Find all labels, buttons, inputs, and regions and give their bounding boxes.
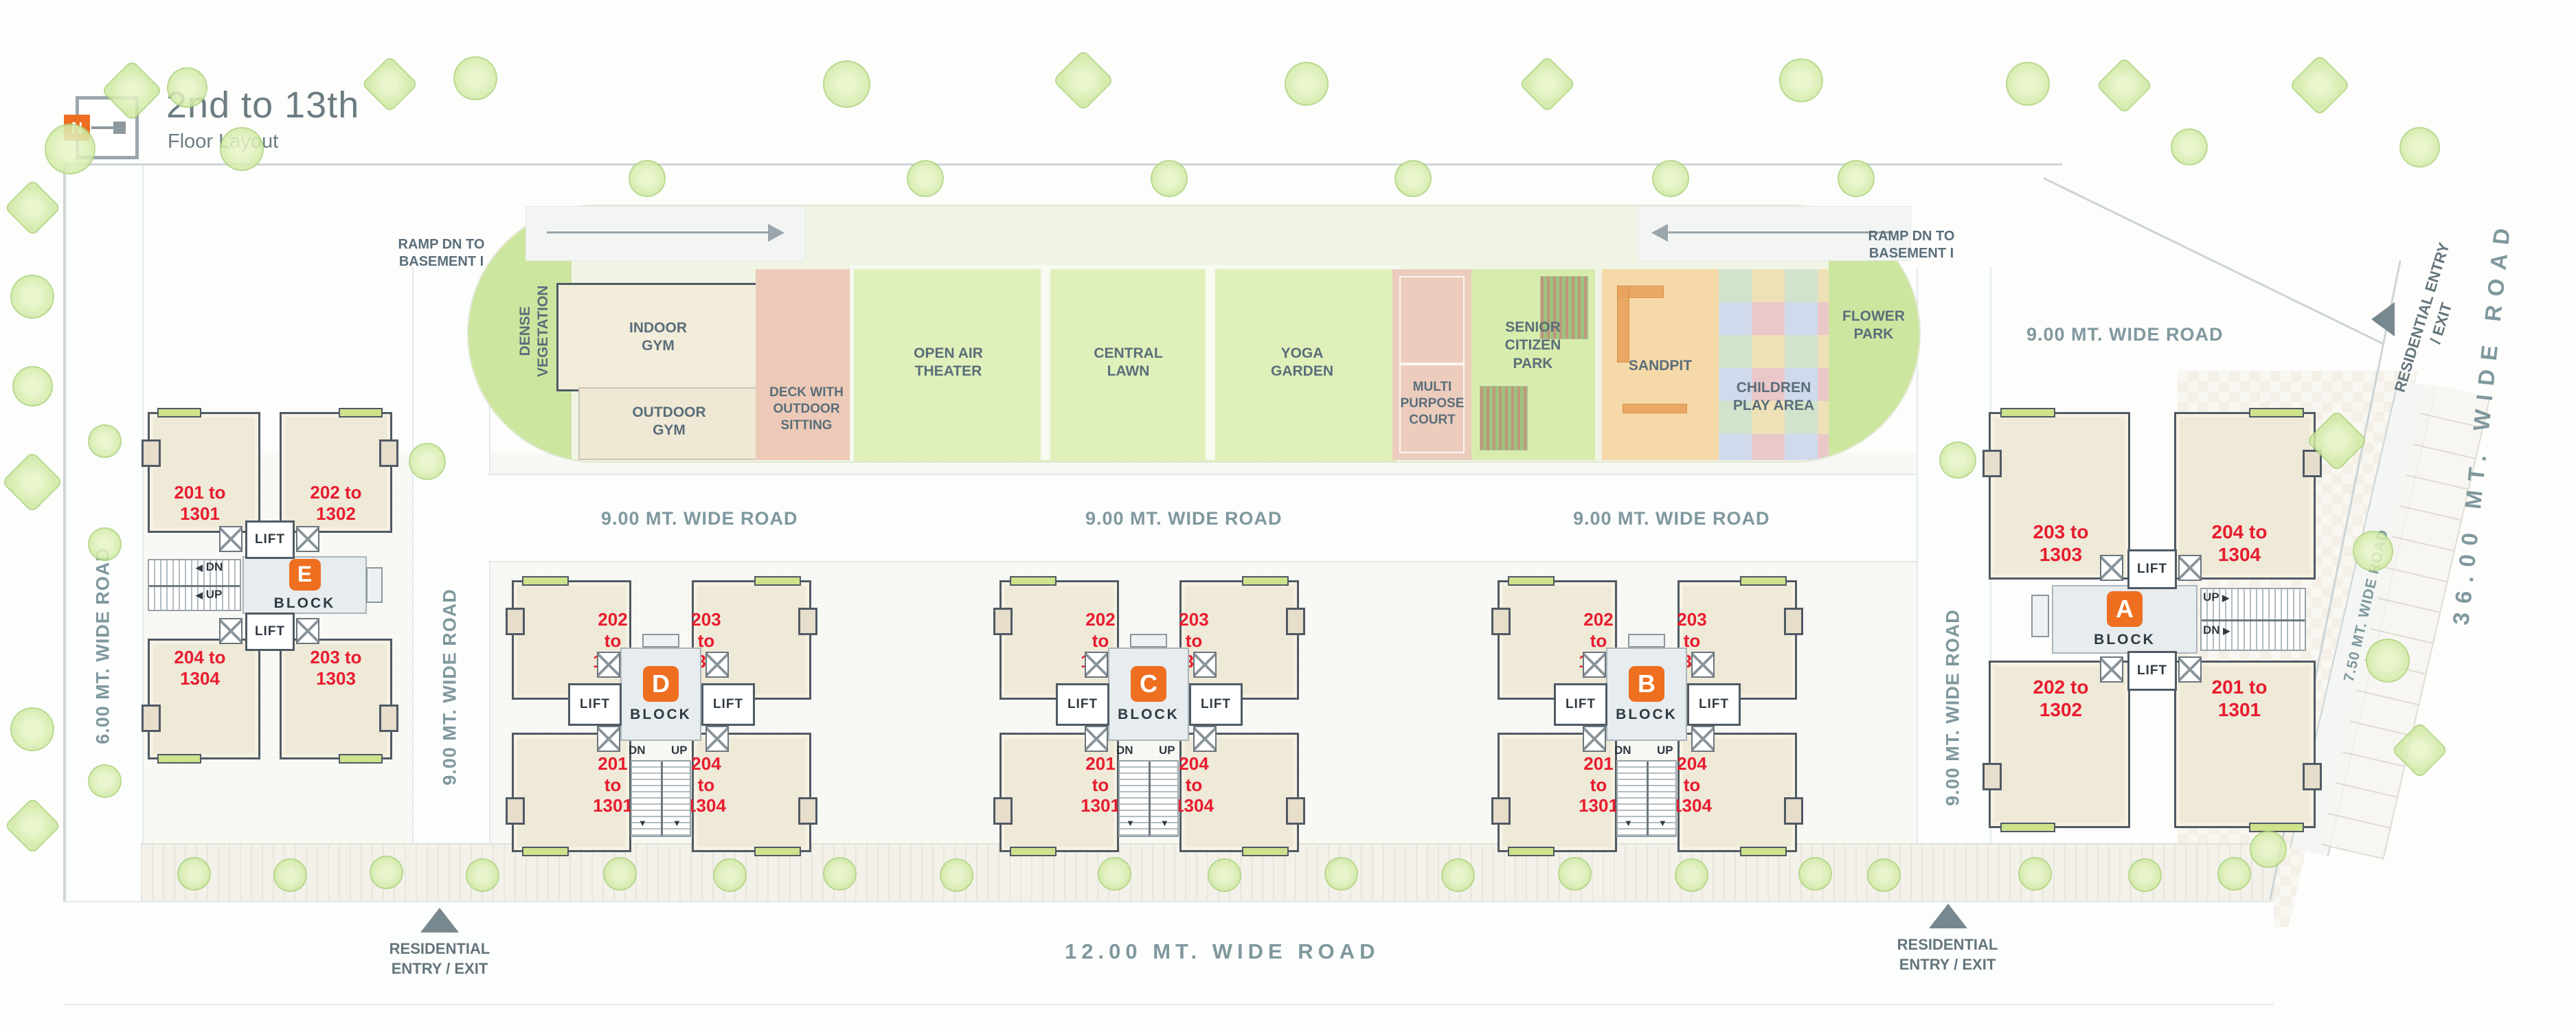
flower-park-label: FLOWER PARK [1841, 308, 1906, 344]
indoor-gym-zone: INDOOR GYM [556, 283, 760, 391]
block-a: 203 to 1303 204 to 1304 202 to 1302 201 … [1989, 412, 2312, 824]
unit-range-label: 204 to 1304 [157, 647, 242, 689]
tree-icon [1518, 55, 1575, 112]
duct-icon [2100, 555, 2123, 581]
outdoor-gym-zone: OUTDOOR GYM [578, 387, 758, 460]
stair-divider [1647, 762, 1649, 836]
tree-icon [88, 527, 122, 561]
site-plan: DENSE VEGETATION INDOOR GYM OUTDOOR GYM … [0, 0, 2576, 1030]
tree-icon [1052, 49, 1115, 112]
duct-icon [1691, 726, 1715, 752]
stair-divider [2202, 619, 2305, 621]
arrow-down-icon: ▼ [1126, 818, 1135, 828]
block-c: 202 to 1302 203 to 1303 201 to 1301 204 … [999, 580, 1295, 848]
tree-icon [1798, 857, 1832, 891]
duct-icon [1691, 652, 1715, 678]
duct-icon [1085, 652, 1108, 678]
play-structure [1617, 286, 1629, 363]
lift-box: LIFT [1189, 683, 1243, 726]
stair-divider [149, 585, 240, 587]
tree-icon [2217, 857, 2251, 891]
tree-icon [167, 67, 207, 108]
tree-icon [2353, 531, 2393, 571]
unit-range-label: 203 to 1303 [293, 647, 379, 689]
tree-icon [12, 366, 53, 407]
tree-icon [88, 424, 122, 458]
tree-icon [453, 56, 497, 100]
block-c-letter-tile: C [1131, 666, 1166, 702]
north-square [113, 122, 126, 134]
indoor-gym-label: INDOOR GYM [624, 319, 692, 356]
duct-icon [1583, 726, 1606, 752]
stair-dn-label: DN [1614, 744, 1631, 757]
block-b-letter-tile: B [1629, 666, 1664, 702]
stair-dn-label: DN [629, 744, 646, 757]
duct-icon [2178, 555, 2202, 581]
tree-icon [1939, 442, 1976, 479]
arrow-left-icon: ◀ [196, 562, 203, 573]
tree-icon [2289, 54, 2351, 117]
central-lawn-label: CENTRAL LAWN [1089, 345, 1168, 381]
tree-icon [940, 858, 973, 892]
block-word: BLOCK [274, 595, 336, 612]
road-label-9m-corner: 9.00 MT. WIDE ROAD [2026, 324, 2205, 345]
tree-icon [88, 764, 122, 798]
children-play-area-label: CHILDREN PLAY AREA [1727, 379, 1820, 415]
tree-icon [1, 451, 64, 514]
tree-icon [2006, 62, 2050, 106]
tree-icon [1652, 160, 1689, 197]
duct-icon [296, 526, 319, 552]
block-word: BLOCK [2094, 632, 2156, 648]
duct-icon [705, 726, 729, 752]
multi-purpose-court-label: MULTI PURPOSE COURT [1390, 379, 1475, 428]
arrow-left-icon: ◀ [196, 590, 203, 600]
entry-triangle-icon [2371, 302, 2395, 336]
multi-purpose-court-zone: MULTI PURPOSE COURT [1392, 269, 1471, 460]
tree-icon [370, 856, 403, 889]
road-label-9m-left-vertical: 9.00 MT. WIDE ROAD [440, 584, 461, 790]
tree-icon [3, 797, 60, 854]
duct-icon [1085, 726, 1108, 752]
arrow-down-icon: ▼ [1160, 818, 1169, 828]
planter [1480, 386, 1528, 450]
block-c-core: C BLOCK [1108, 648, 1189, 741]
tree-icon [1675, 858, 1708, 892]
unit-range-label: 203 to 1303 [2013, 520, 2109, 566]
duct-icon [219, 526, 242, 552]
block-a-letter-tile: A [2107, 591, 2143, 627]
entry-label-bottom-right: RESIDENTIAL ENTRY / EXIT [1882, 935, 2013, 974]
road-label-9m-a: 9.00 MT. WIDE ROAD [601, 508, 780, 529]
unit-range-label: 201 to 1301 [2191, 676, 2287, 721]
tree-icon [361, 55, 418, 112]
tree-icon [2095, 56, 2152, 113]
children-play-area-zone: CHILDREN PLAY AREA [1719, 269, 1829, 460]
block-b: 202 to 1302 203 to 1303 201 to 1301 204 … [1498, 580, 1793, 848]
tree-icon [1324, 857, 1358, 891]
tree-icon [220, 127, 264, 171]
lawn-path [1206, 269, 1215, 460]
tree-icon [45, 124, 95, 174]
boundary-top-right-slant [2043, 177, 2384, 345]
sandpit-label: SANDPIT [1619, 357, 1702, 375]
duct-icon [1583, 652, 1606, 678]
lift-box: LIFT [568, 683, 622, 726]
lawn-path [1041, 269, 1050, 460]
tree-icon [1558, 857, 1592, 891]
unit-range-label: 201 to 1301 [589, 753, 637, 816]
arrow-down-icon: ▼ [673, 818, 681, 828]
block-b-core: B BLOCK [1606, 648, 1687, 741]
outdoor-gym-label: OUTDOOR GYM [628, 404, 710, 440]
tree-icon [3, 179, 60, 236]
road-label-12m: 12.00 MT. WIDE ROAD [1065, 939, 1340, 964]
stair-up-label: UP [671, 744, 688, 757]
deck-zone: DECK WITH OUTDOOR SITTING [756, 269, 857, 460]
block-d: 202 to 1302 203 to 1303 201 to 1301 204 … [512, 580, 807, 848]
lift-box: LIFT [1687, 683, 1741, 726]
drive-line [547, 231, 773, 233]
duct-icon [219, 618, 242, 644]
tree-icon [10, 707, 54, 751]
tree-icon [2128, 858, 2162, 892]
duct-icon [2178, 656, 2202, 683]
block-d-letter-tile: D [643, 666, 679, 702]
court-center-line [1399, 363, 1465, 365]
entry-triangle-icon [1929, 904, 1967, 928]
tree-icon [1285, 62, 1329, 106]
boundary-top [63, 163, 2062, 165]
arrow-down-icon: ▼ [638, 818, 647, 828]
tree-icon [1098, 857, 1131, 891]
tree-icon [10, 275, 54, 319]
entry-label-bottom-left: RESIDENTIAL ENTRY / EXIT [374, 939, 505, 978]
core-tab [642, 634, 679, 648]
unit-range-label: 202 to 1302 [293, 482, 379, 524]
unit-range-label: 201 to 1301 [157, 482, 242, 524]
arrow-right-icon: ▶ [2223, 626, 2230, 636]
stair-dn-label: DN [206, 560, 223, 573]
block-a-core: A BLOCK [2052, 585, 2197, 654]
entry-triangle-icon [420, 908, 459, 932]
yoga-garden-label: YOGA GARDEN [1266, 345, 1338, 381]
ramp-label-right: RAMP DN TO BASEMENT I [1851, 228, 1971, 262]
deck-label: DECK WITH OUTDOOR SITTING [765, 385, 848, 433]
senior-citizen-park-zone: SENIOR CITIZEN PARK [1471, 269, 1595, 460]
stair-divider [661, 762, 663, 836]
unit-range-label: 201 to 1301 [1076, 753, 1125, 816]
tree-icon [177, 857, 211, 891]
tree-icon [629, 160, 666, 197]
open-air-theater-label: OPEN AIR THEATER [902, 345, 995, 381]
core-tab [1130, 634, 1167, 648]
tree-icon [907, 160, 944, 197]
tree-icon [409, 443, 446, 480]
boundary-left [63, 163, 65, 901]
drive-arrow-left-icon [1651, 224, 1668, 242]
play-structure [1623, 404, 1687, 413]
lift-box: LIFT [245, 520, 295, 559]
duct-icon [597, 652, 620, 678]
tree-icon [2399, 127, 2440, 168]
stair-dn-label: DN [1116, 744, 1133, 757]
tree-icon [1838, 160, 1875, 197]
ramp-label-left: RAMP DN TO BASEMENT I [381, 236, 501, 271]
stair-up-label: UP [1657, 744, 1673, 757]
tree-icon [603, 857, 637, 891]
lift-box: LIFT [1554, 683, 1607, 726]
senior-citizen-park-label: SENIOR CITIZEN PARK [1493, 319, 1572, 373]
stair-up-label: UP [206, 588, 223, 601]
lift-box: LIFT [2127, 651, 2177, 691]
tree-icon [823, 857, 857, 891]
block-word: BLOCK [1118, 707, 1179, 723]
tree-icon [1867, 858, 1901, 892]
core-tab [366, 567, 383, 603]
ramp-drive-left [526, 206, 805, 261]
dense-vegetation-label: DENSE VEGETATION [517, 276, 553, 386]
central-lawn-zone: OPEN AIR THEATER CENTRAL LAWN YOGA GARDE… [850, 265, 1401, 463]
core-tab [1628, 634, 1665, 648]
block-e: 201 to 1301 202 to 1302 204 to 1304 203 … [148, 412, 388, 755]
tree-icon [1151, 160, 1188, 197]
duct-icon [2100, 656, 2123, 683]
drive-arrow-right-icon [768, 224, 784, 242]
tree-icon [2250, 831, 2287, 868]
road-label-9m-right-vertical: 9.00 MT. WIDE ROAD [1943, 605, 1964, 811]
block-e-core: E BLOCK [242, 556, 367, 614]
unit-range-label: 201 to 1301 [1574, 753, 1623, 816]
tree-icon [466, 858, 499, 892]
tree-icon [2366, 639, 2410, 683]
unit-range-label: 204 to 1304 [2191, 520, 2287, 566]
tree-icon [1441, 858, 1475, 892]
tree-icon [273, 858, 307, 892]
stair-up-label: UP [2203, 591, 2219, 604]
tree-icon [1779, 58, 1823, 102]
road-label-9m-c: 9.00 MT. WIDE ROAD [1573, 508, 1752, 529]
lift-box: LIFT [2127, 549, 2177, 589]
tree-icon [2171, 128, 2208, 165]
road-label-9m-b: 9.00 MT. WIDE ROAD [1085, 508, 1264, 529]
duct-icon [1193, 652, 1217, 678]
block-d-core: D BLOCK [620, 648, 701, 741]
block-word: BLOCK [1616, 707, 1677, 723]
stair-dn-label: DN [2203, 623, 2220, 637]
entry-label-top-right: RESIDENTIAL ENTRY / EXIT [2390, 239, 2474, 402]
tree-icon [713, 858, 747, 892]
tree-icon [1208, 858, 1241, 892]
arrow-right-icon: ▶ [2222, 593, 2229, 603]
tree-icon [1394, 160, 1432, 197]
core-tab [2031, 595, 2049, 637]
stair-up-label: UP [1159, 744, 1175, 757]
duct-icon [296, 618, 319, 644]
stair-divider [1149, 762, 1151, 836]
north-line [91, 126, 115, 129]
sandpit-zone: SANDPIT [1602, 269, 1719, 460]
arrow-down-icon: ▼ [1624, 818, 1633, 828]
block-word: BLOCK [630, 707, 692, 723]
block-e-letter-tile: E [289, 559, 321, 591]
duct-icon [1193, 726, 1217, 752]
road-label-6m-left: 6.00 MT. WIDE ROAD [93, 543, 114, 749]
lift-box: LIFT [245, 613, 295, 651]
lift-box: LIFT [1056, 683, 1109, 726]
duct-icon [597, 726, 620, 752]
arrow-down-icon: ▼ [1658, 818, 1667, 828]
unit-range-label: 202 to 1302 [2013, 676, 2109, 721]
staircase [148, 559, 241, 611]
duct-icon [705, 652, 729, 678]
tree-icon [823, 60, 870, 108]
tree-icon [2018, 857, 2052, 891]
lift-box: LIFT [701, 683, 755, 726]
